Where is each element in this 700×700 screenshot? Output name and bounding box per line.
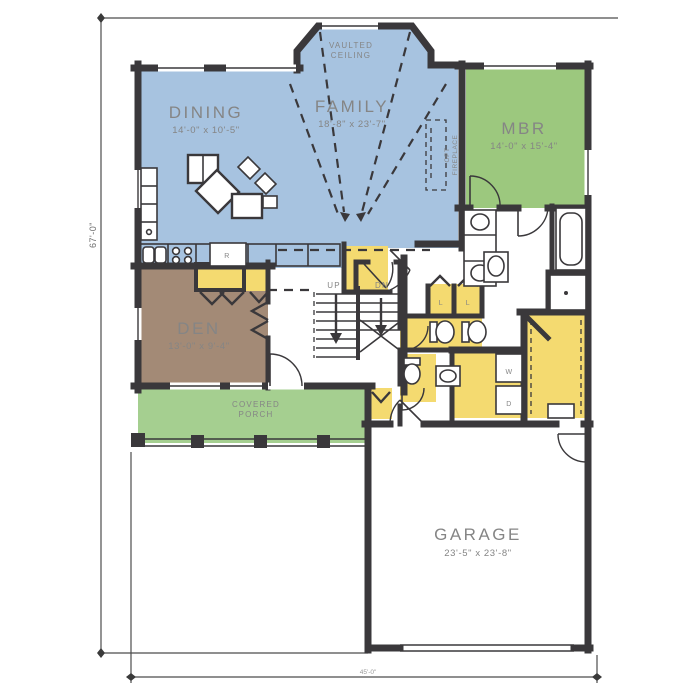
porch-column: [254, 435, 267, 448]
dim-label-left: 67'-0": [88, 222, 98, 248]
washer: [496, 354, 522, 382]
dim-label-bottom: 45'-0": [360, 669, 377, 676]
porch-column: [191, 435, 204, 448]
vaulted-note-1: VAULTED: [329, 41, 373, 50]
porch-label-1: COVERED: [232, 400, 280, 409]
family-dims: 18'-8" x 23'-7": [318, 119, 385, 130]
dryer: [496, 386, 522, 414]
washer-label: W: [505, 369, 512, 376]
powder-sink: [436, 366, 460, 386]
vaulted-note-2: CEILING: [331, 51, 371, 60]
opt-fireplace-label-2: FIREPLACE: [452, 135, 459, 176]
master-bath-door: [518, 208, 548, 236]
toilet: [430, 321, 454, 343]
toilet: [462, 321, 486, 343]
mbr-dims: 14'-0" x 15'-4": [490, 141, 557, 152]
linen-label-2: L: [466, 300, 470, 307]
opt-fireplace-label-1: OPT: [444, 148, 451, 163]
den-label: DEN: [177, 319, 220, 338]
stairs-down-label: DN: [375, 281, 389, 290]
family-label: FAMILY: [315, 97, 389, 116]
dim-arrow: [126, 673, 136, 681]
garage-label: GARAGE: [434, 525, 522, 544]
walkin-closet-floor: [524, 314, 588, 418]
floor-plan-drawing: 67'-0" 45'-0": [0, 0, 700, 700]
garage-overhead-door: [400, 645, 574, 651]
wall-cabinets: [141, 168, 157, 240]
dim-arrow: [97, 13, 105, 23]
linen-label-1: L: [439, 300, 443, 307]
master-bedroom-floor: [466, 68, 588, 208]
porch-label-2: PORCH: [239, 410, 274, 419]
garage-dims: 23'-5" x 23'-8": [444, 548, 511, 559]
mbr-label: MBR: [501, 119, 546, 138]
porch-column: [317, 435, 330, 448]
garage-entry-door: [558, 434, 586, 462]
floor-plan-canvas: 67'-0" 45'-0": [0, 0, 700, 700]
bathtub: [556, 208, 586, 270]
dining-label: DINING: [169, 103, 244, 122]
front-door: [268, 354, 304, 390]
shower: [550, 275, 586, 310]
closet-floor: [246, 266, 268, 291]
porch-column: [131, 433, 145, 447]
closet-bench: [548, 404, 574, 418]
dim-arrow: [97, 648, 105, 658]
refrigerator-label: R: [224, 253, 230, 260]
stairs-up-label: UP: [327, 281, 341, 290]
powder-toilet: [404, 358, 420, 384]
dryer-label: D: [506, 401, 512, 408]
den-dims: 13'-0" x 9'-4": [168, 341, 230, 352]
dining-dims: 14'-0" x 10'-5": [172, 125, 239, 136]
hall-vanity: [484, 252, 508, 282]
dim-arrow: [592, 673, 602, 681]
entry-door: [390, 400, 424, 424]
kitchen-sink: [143, 247, 166, 263]
